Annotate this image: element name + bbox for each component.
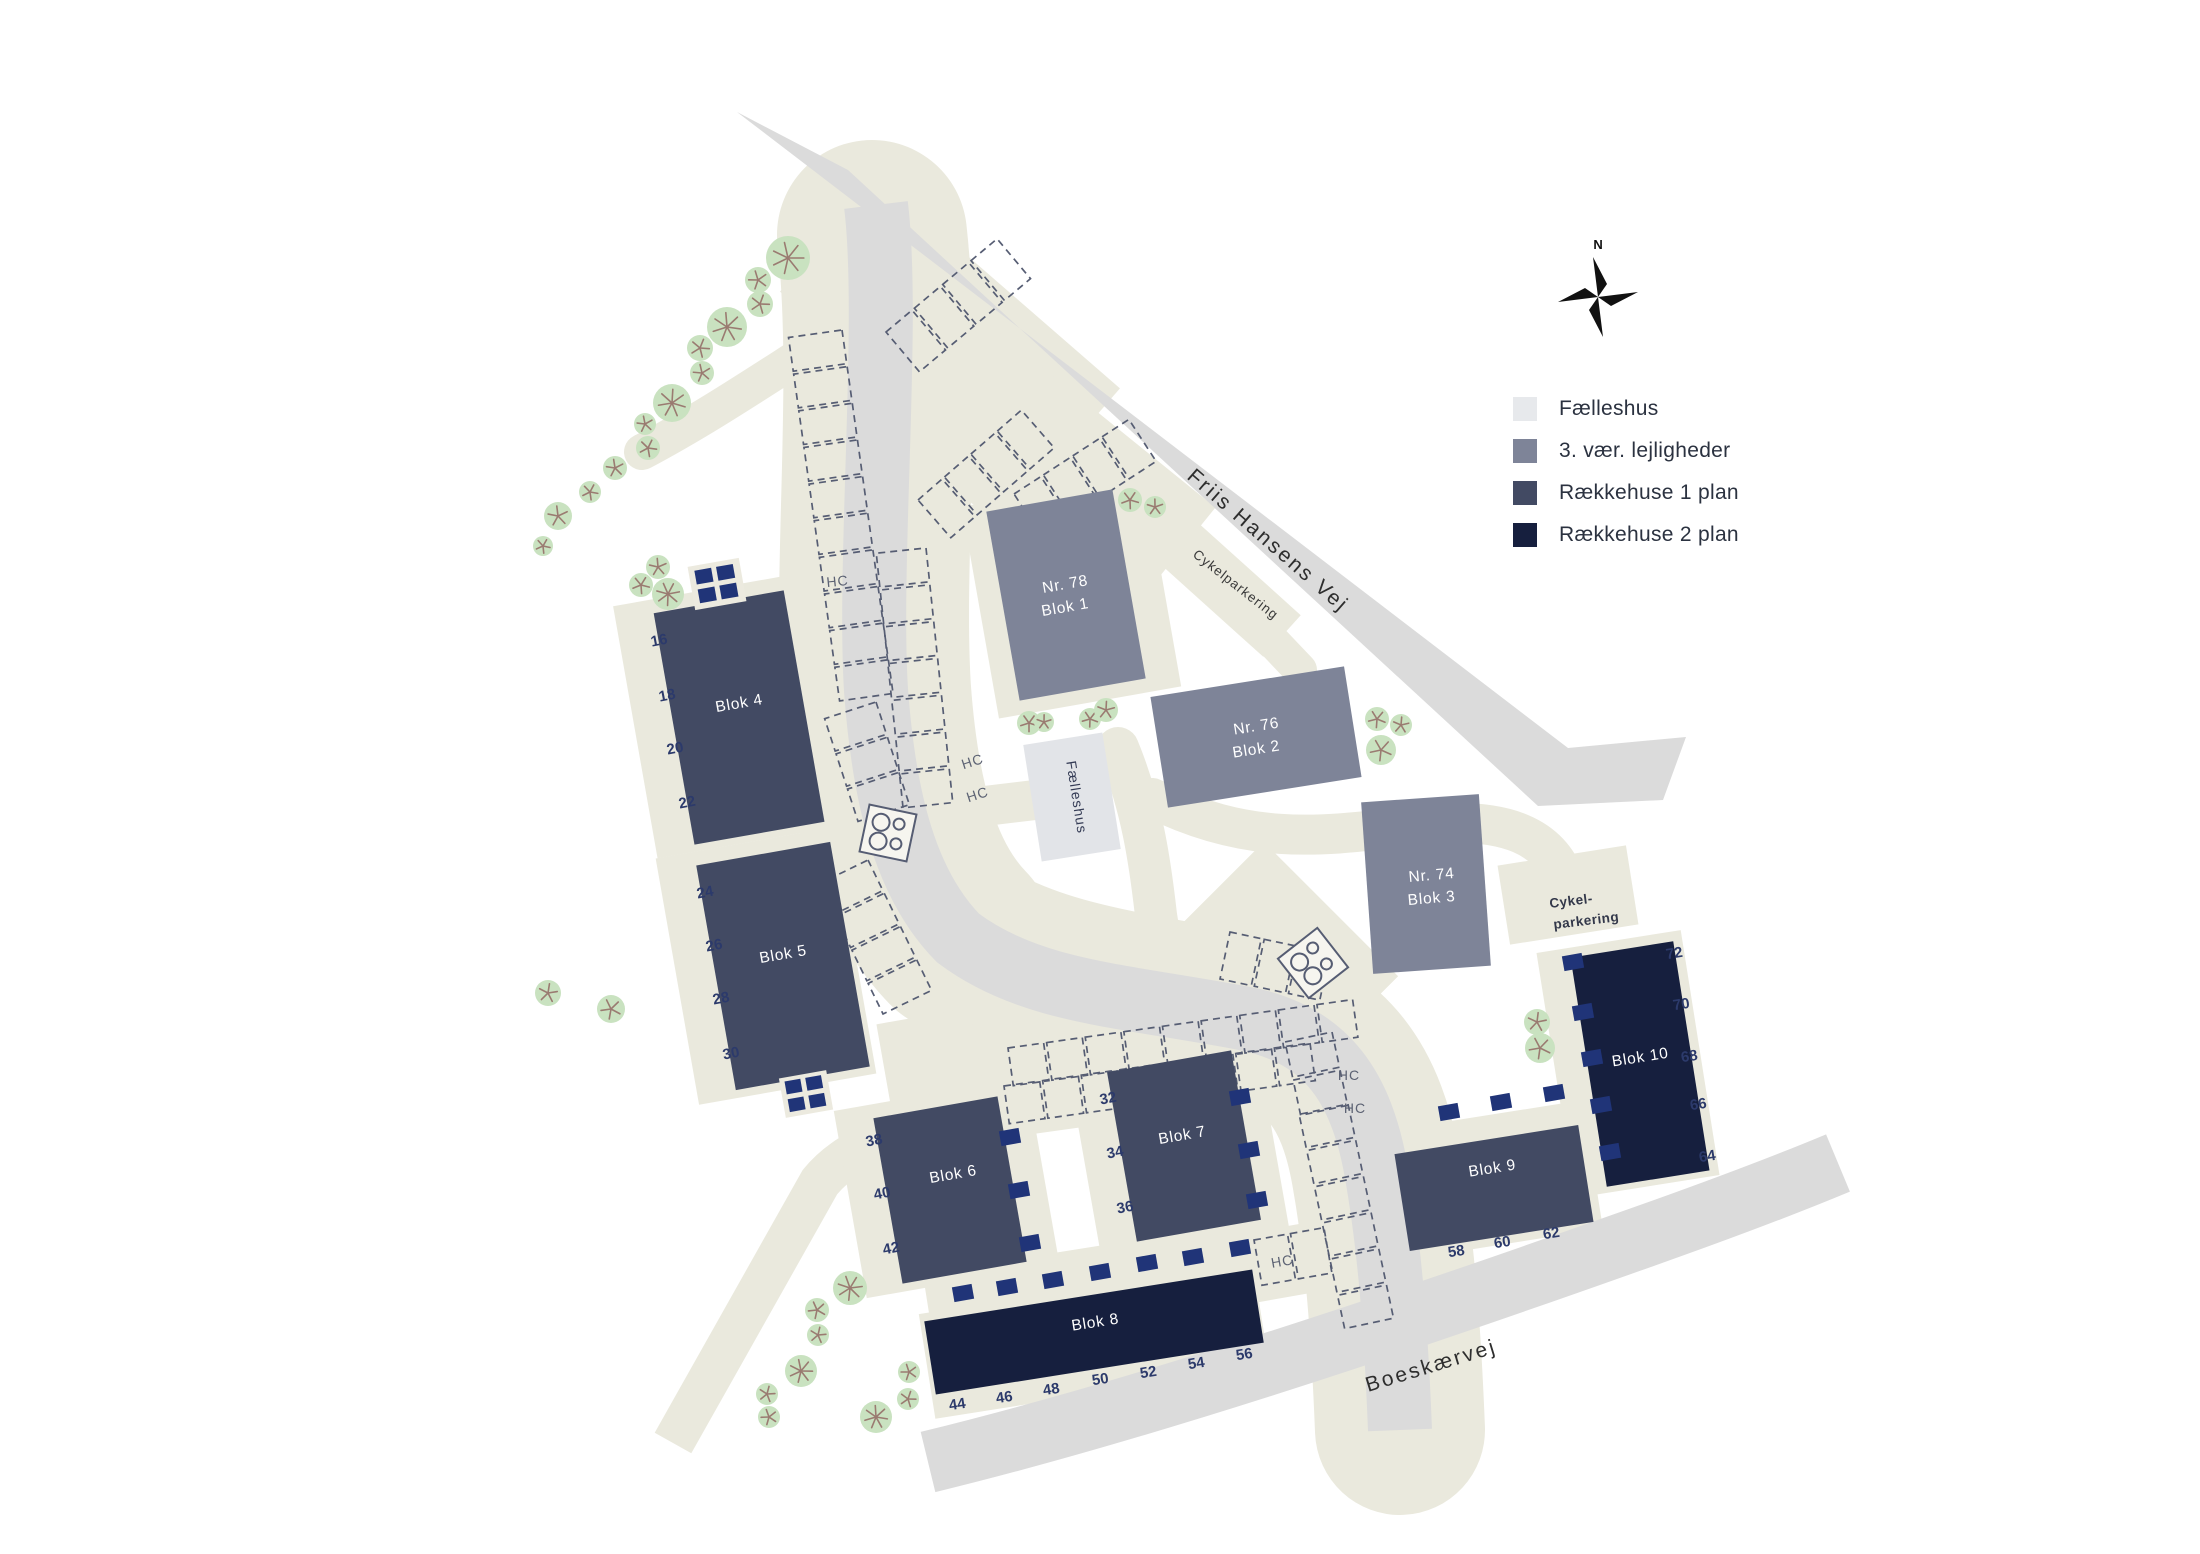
tree-icon — [1034, 712, 1054, 732]
tree-icon — [579, 481, 601, 503]
tree-icon — [603, 456, 627, 480]
tree-icon — [629, 573, 653, 597]
tree-icon — [533, 536, 553, 556]
tree-icon — [544, 502, 572, 530]
hc-parking-label: HC — [1344, 1100, 1366, 1116]
legend-item-faelleshus: Fælleshus — [1513, 396, 1739, 422]
tree-icon — [766, 236, 810, 280]
house-number: 64 — [1698, 1147, 1718, 1167]
waste-station — [860, 805, 917, 862]
legend: Fælleshus 3. vær. lejligheder Rækkehuse … — [1513, 396, 1739, 564]
house-number: 52 — [1139, 1363, 1158, 1382]
tree-icon — [1524, 1009, 1550, 1035]
compass-star-icon — [1558, 257, 1638, 337]
tree-icon — [634, 413, 656, 435]
tree-icon — [897, 1388, 919, 1410]
tree-icon — [690, 361, 714, 385]
house-number: 26 — [704, 936, 724, 956]
house-number: 58 — [1447, 1242, 1466, 1261]
tree-icon — [860, 1401, 892, 1433]
legend-label: 3. vær. lejligheder — [1559, 439, 1730, 463]
house-number: 50 — [1091, 1370, 1110, 1389]
compass-north-label: N — [1593, 237, 1602, 252]
house-number: 18 — [657, 686, 677, 706]
window-grid-marker — [688, 558, 747, 610]
tree-icon — [1525, 1033, 1555, 1063]
tree-icon — [653, 384, 691, 422]
house-number: 32 — [1098, 1089, 1118, 1109]
tree-icon — [898, 1361, 920, 1383]
house-number: 40 — [872, 1184, 892, 1204]
house-number: 48 — [1042, 1380, 1061, 1399]
window-grid-marker — [779, 1070, 833, 1118]
house-number: 36 — [1115, 1198, 1135, 1218]
tree-icon — [1144, 496, 1166, 518]
tree-icon — [597, 995, 625, 1023]
tree-icon — [758, 1406, 780, 1428]
tree-icon — [687, 335, 713, 361]
tree-icon — [652, 578, 684, 610]
tree-icon — [1390, 714, 1412, 736]
site-plan-map: Friis Hansens Vej Boeskærvej Cykelparker… — [0, 0, 2200, 1554]
legend-label: Rækkehuse 2 plan — [1559, 523, 1739, 547]
house-number: 16 — [649, 631, 669, 651]
legend-item-rowhouse-1: Rækkehuse 1 plan — [1513, 480, 1739, 506]
tree-icon — [535, 980, 561, 1006]
tree-icon — [785, 1355, 817, 1387]
tree-icon — [1365, 707, 1389, 731]
hc-parking-label: HC — [1338, 1067, 1360, 1083]
tree-icon — [1118, 488, 1142, 512]
building-blok2[interactable] — [1150, 666, 1361, 807]
tree-icon — [805, 1298, 829, 1322]
tree-icon — [747, 291, 773, 317]
tree-icon — [1094, 698, 1118, 722]
legend-swatch-faelleshus — [1513, 397, 1537, 421]
house-number: 54 — [1187, 1354, 1207, 1374]
hc-parking-label: HC — [826, 572, 850, 590]
house-number: 22 — [677, 793, 697, 813]
legend-swatch-apartments — [1513, 439, 1537, 463]
house-number: 44 — [948, 1395, 968, 1415]
tree-icon — [636, 436, 660, 460]
house-number: 20 — [665, 739, 685, 759]
house-number: 60 — [1493, 1233, 1512, 1252]
legend-label: Rækkehuse 1 plan — [1559, 481, 1739, 505]
compass-rose: N — [1558, 237, 1638, 337]
house-number: 42 — [881, 1239, 901, 1259]
house-number: 38 — [864, 1131, 884, 1151]
tree-icon — [646, 555, 670, 579]
house-number: 62 — [1542, 1224, 1561, 1243]
legend-label: Fælleshus — [1559, 397, 1659, 421]
legend-item-rowhouse-2: Rækkehuse 2 plan — [1513, 522, 1739, 548]
site-plan: Friis Hansens Vej Boeskærvej Cykelparker… — [0, 0, 2200, 1554]
legend-item-apartments: 3. vær. lejligheder — [1513, 438, 1739, 464]
house-number: 68 — [1680, 1047, 1699, 1066]
house-number: 66 — [1689, 1095, 1708, 1114]
house-number: 46 — [995, 1388, 1014, 1407]
house-number: 70 — [1672, 995, 1691, 1014]
tree-icon — [707, 307, 747, 347]
legend-swatch-rowhouse-1 — [1513, 481, 1537, 505]
tree-icon — [745, 267, 771, 293]
tree-icon — [807, 1324, 829, 1346]
shed-marker — [1490, 1093, 1512, 1111]
house-number: 72 — [1665, 944, 1684, 963]
tree-icon — [833, 1271, 867, 1305]
house-number: 28 — [711, 989, 731, 1009]
house-number: 30 — [721, 1044, 741, 1064]
house-number: 56 — [1235, 1345, 1254, 1364]
legend-swatch-rowhouse-2 — [1513, 523, 1537, 547]
tree-icon — [756, 1383, 778, 1405]
tree-icon — [1366, 735, 1396, 765]
